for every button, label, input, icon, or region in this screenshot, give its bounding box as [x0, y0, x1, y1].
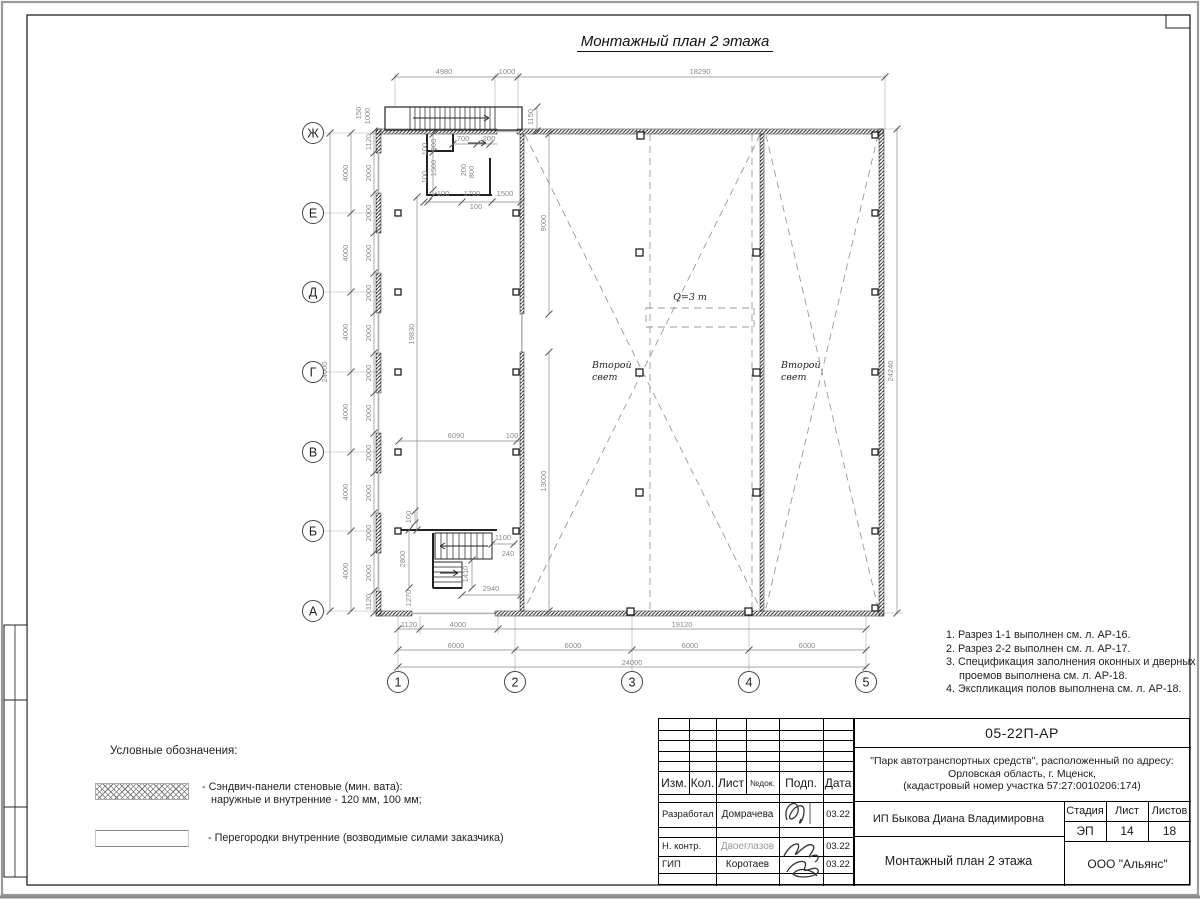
axis-label: 5 [863, 676, 870, 690]
tb-date: 03.22 [823, 856, 853, 873]
dim-label: 19830 [407, 324, 416, 345]
axis-label: 4 [746, 676, 753, 690]
dim-label: 4000 [341, 324, 350, 341]
axis-bubbles: ЖЕДГВБА12345 [303, 123, 877, 693]
exterior-stair-top [385, 107, 522, 130]
dim-label: 2000 [364, 205, 373, 222]
dim-label: 9000 [539, 215, 548, 232]
dim-label: 4000 [450, 620, 467, 629]
dim-label: 800 [467, 166, 476, 179]
dim-label: 1120 [364, 594, 373, 610]
dim-label: 4980 [436, 67, 453, 76]
dim-label: 100 [470, 202, 483, 211]
dim-label: 2000 [364, 285, 373, 302]
dim-label: 4000 [341, 245, 350, 262]
dim-label: 200 [483, 134, 496, 143]
tb-col-ndok: №док. [746, 771, 779, 794]
dim-label: 18290 [690, 67, 711, 76]
dim-label: 6000 [565, 641, 582, 650]
dim-label: 1000 [363, 108, 372, 125]
plan-label: Второй [780, 360, 821, 371]
drawing-title: Монтажный план 2 этажа [535, 33, 815, 50]
dim-label: 150 [354, 107, 363, 120]
plan-label: Q=3 т [673, 292, 707, 303]
tb-listov-value: 18 [1148, 821, 1191, 841]
tb-list-value: 14 [1106, 821, 1148, 841]
tb-col-list: Лист [716, 771, 746, 794]
tb-date: 03.22 [823, 837, 853, 856]
tb-role: Н. контр. [659, 837, 719, 856]
dim-label: 100 [420, 171, 429, 184]
crane-zone [646, 308, 754, 327]
plan-label: свет [592, 372, 617, 383]
dim-label: 1120 [401, 620, 417, 629]
dim-label: 4000 [341, 165, 350, 182]
dim-label: 2000 [364, 165, 373, 182]
dim-label: 1100 [495, 533, 511, 542]
dim-label: 2940 [483, 584, 500, 593]
axis-label: А [309, 605, 318, 619]
dim-label: 1500 [429, 160, 438, 177]
dim-label: 2000 [364, 245, 373, 262]
dim-label: 1410 [461, 566, 470, 583]
dim-label: 1500 [497, 189, 514, 198]
tb-col-kol: Кол. [689, 771, 716, 794]
axis-label: Б [309, 525, 317, 539]
axis-label: 1 [395, 676, 402, 690]
tb-doc-number: 05-22П-АР [853, 719, 1191, 747]
legend-heading: Условные обозначения: [110, 745, 237, 757]
drawing-sheet: 4980100018290115015010002400040004000400… [0, 0, 1200, 900]
tb-name: Коротаев [716, 856, 779, 873]
dim-label: 2800 [398, 551, 407, 568]
tb-listov-header: Листов [1148, 801, 1191, 821]
dashed-brace-lines [525, 134, 878, 609]
dim-label: 4000 [341, 404, 350, 421]
dim-label: 700 [457, 134, 470, 143]
dim-label: 1150 [526, 109, 535, 125]
tb-client: ИП Быкова Диана Владимировна [853, 801, 1064, 836]
dim-label: 100 [404, 511, 413, 524]
dim-label: 2000 [364, 565, 373, 582]
interior-stair [398, 530, 497, 588]
tb-col-izm: Изм. [659, 771, 689, 794]
note-item: 1. Разрез 1-1 выполнен см. л. АР-16. [946, 629, 1200, 643]
tb-stage-value: ЭП [1064, 821, 1106, 841]
dim-label: 1120 [364, 134, 373, 150]
dim-label: 100 [420, 143, 429, 156]
legend: Условные обозначения: - Сэндвич-панели с… [110, 745, 237, 757]
dim-label: 24240 [886, 361, 895, 382]
note-item: 4. Экспликация полов выполнена см. л. АР… [946, 683, 1200, 697]
dim-label: 19120 [672, 620, 693, 629]
plan-text-labels: Q=3 тВторойсветВторойсвет [591, 292, 821, 383]
signatures [779, 794, 823, 886]
dim-label: 6090 [448, 431, 465, 440]
legend-item: - Сэндвич-панели стеновые (мин. вата): н… [202, 781, 422, 807]
dim-label: 6000 [799, 641, 816, 650]
legend-item: - Перегородки внутренние (возводимые сил… [208, 832, 504, 845]
plan-label: Второй [591, 360, 632, 371]
dim-label: 13000 [539, 471, 548, 492]
dim-label: 1270 [404, 590, 413, 607]
dim-label: 2000 [364, 445, 373, 462]
legend-swatch-sandwich-panel [95, 783, 189, 800]
dim-label: 6000 [682, 641, 699, 650]
axis-label: Ж [307, 127, 319, 141]
tb-stage-header: Стадия [1064, 801, 1106, 821]
tb-name: Двоеглазов [716, 837, 779, 856]
tb-role: Разработал [659, 802, 719, 827]
tb-role: ГИП [659, 856, 719, 873]
dim-label: 240 [502, 549, 515, 558]
axis-label: Г [310, 366, 317, 380]
tb-list-header: Лист [1106, 801, 1148, 821]
dim-label: 2000 [364, 525, 373, 542]
axis-label: В [309, 446, 317, 460]
dim-label: 900 [429, 139, 438, 152]
tb-date: 03.22 [823, 802, 853, 827]
dim-label: 2000 [364, 485, 373, 502]
dim-label: 1700 [464, 189, 481, 198]
tb-sheet-title: Монтажный план 2 этажа [853, 836, 1064, 886]
notes-list: 1. Разрез 1-1 выполнен см. л. АР-16. 2. … [946, 629, 1200, 697]
dim-label: 4000 [341, 484, 350, 501]
dim-label: 2000 [364, 405, 373, 422]
legend-swatch-partition [95, 830, 189, 847]
dim-label: 4000 [341, 563, 350, 580]
margin-stamp-boxes [4, 625, 27, 877]
axis-label: Д [309, 286, 318, 300]
dim-label: 2000 [364, 325, 373, 342]
axis-label: 2 [512, 676, 519, 690]
note-item: 2. Разрез 2-2 выполнен см. л. АР-17. [946, 643, 1200, 657]
tb-project: "Парк автотранспортных средств", располо… [853, 747, 1191, 801]
note-item: 3. Спецификация заполнения оконных и две… [946, 656, 1200, 683]
dim-label: 24000 [622, 658, 643, 667]
tb-col-podp: Подп. [779, 771, 823, 794]
dim-label: 1000 [499, 67, 516, 76]
tb-name: Домрачева [716, 802, 779, 827]
title-block: Изм. Кол. Лист №док. Подп. Дата Разработ… [658, 718, 1190, 885]
axis-label: Е [309, 207, 317, 221]
tb-company: ООО "Альянс" [1064, 841, 1191, 886]
plan-label: свет [781, 372, 806, 383]
dim-label: 6000 [448, 641, 465, 650]
dim-label: 100 [437, 189, 450, 198]
dim-label: 100 [506, 431, 519, 440]
axis-label: 3 [629, 676, 636, 690]
tb-col-data: Дата [823, 771, 853, 794]
dim-label: 2000 [364, 365, 373, 382]
